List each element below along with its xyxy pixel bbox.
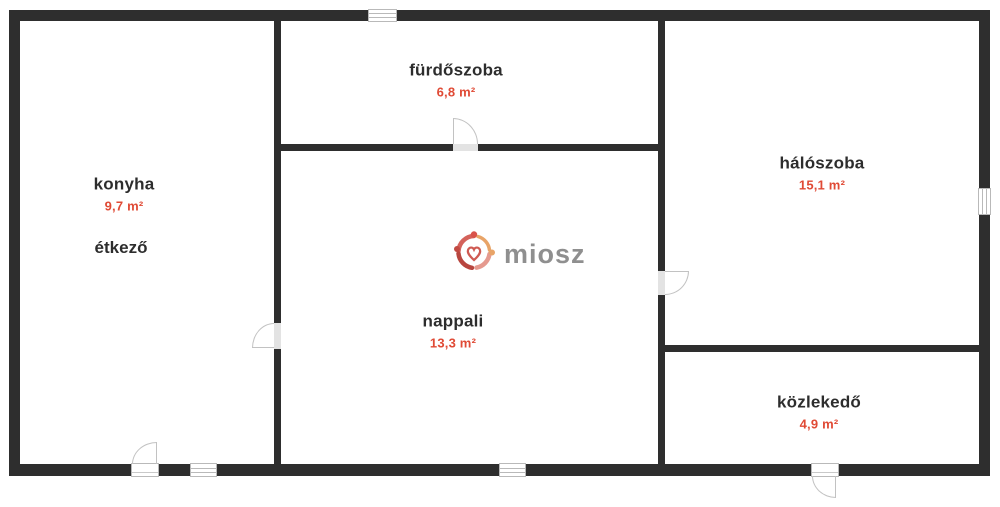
- door-opening-bathroom: [453, 144, 478, 151]
- window-pane: [982, 189, 987, 214]
- door-leaf-line: [132, 468, 158, 473]
- room-nappali: nappali 13,3 m²: [423, 312, 484, 351]
- miosz-logo-text: miosz: [504, 239, 586, 270]
- area-label-nappali: 13,3 m²: [430, 336, 476, 351]
- window-living-bottom: [499, 463, 526, 477]
- miosz-logo: miosz: [452, 230, 586, 279]
- window-pane: [369, 13, 396, 18]
- door-opening-bedroom: [658, 271, 665, 295]
- room-label-nappali: nappali: [423, 312, 484, 332]
- door-opening-entrance: [811, 463, 839, 477]
- room-label-etkezo: étkező: [95, 238, 148, 258]
- room-kozlekedo: közlekedő 4,9 m²: [777, 393, 861, 432]
- door-arc-kitchen-icon: [252, 323, 274, 348]
- window-pane: [500, 468, 525, 473]
- window-bathroom-top: [368, 9, 397, 22]
- door-arc-entrance-icon: [812, 476, 836, 498]
- miosz-logo-icon: [452, 230, 496, 279]
- floor-plan: konyha 9,7 m² étkező fürdőszoba 6,8 m² n…: [0, 0, 1000, 507]
- room-label-kozlekedo: közlekedő: [777, 393, 861, 413]
- door-opening-kitchen-exterior: [131, 463, 159, 477]
- door-arc-bathroom-icon: [453, 118, 478, 144]
- room-label-konyha: konyha: [94, 175, 155, 195]
- area-label-haloszoba: 15,1 m²: [799, 178, 845, 193]
- window-pane: [191, 468, 216, 473]
- room-furdoszoba: fürdőszoba 6,8 m²: [409, 61, 503, 100]
- wall-bedroom-hallway: [665, 345, 979, 352]
- area-label-furdoszoba: 6,8 m²: [437, 85, 476, 100]
- area-label-kozlekedo: 4,9 m²: [800, 417, 839, 432]
- window-kitchen-bottom: [190, 463, 217, 477]
- room-label-furdoszoba: fürdőszoba: [409, 61, 503, 81]
- wall-living-bedroom: [658, 21, 665, 464]
- wall-outer-right: [979, 10, 990, 476]
- room-konyha: konyha 9,7 m²: [94, 175, 155, 214]
- wall-outer-top: [9, 10, 990, 21]
- door-leaf-line: [812, 468, 838, 473]
- wall-outer-left: [9, 10, 20, 476]
- window-bedroom-right: [978, 188, 991, 215]
- door-arc-bedroom-icon: [665, 271, 689, 295]
- wall-kitchen-living: [274, 21, 281, 464]
- room-label-haloszoba: hálószoba: [780, 154, 865, 174]
- door-opening-kitchen: [274, 323, 281, 349]
- area-label-konyha: 9,7 m²: [105, 199, 144, 214]
- door-arc-kitchen-exterior-icon: [132, 442, 157, 464]
- room-haloszoba: hálószoba 15,1 m²: [780, 154, 865, 193]
